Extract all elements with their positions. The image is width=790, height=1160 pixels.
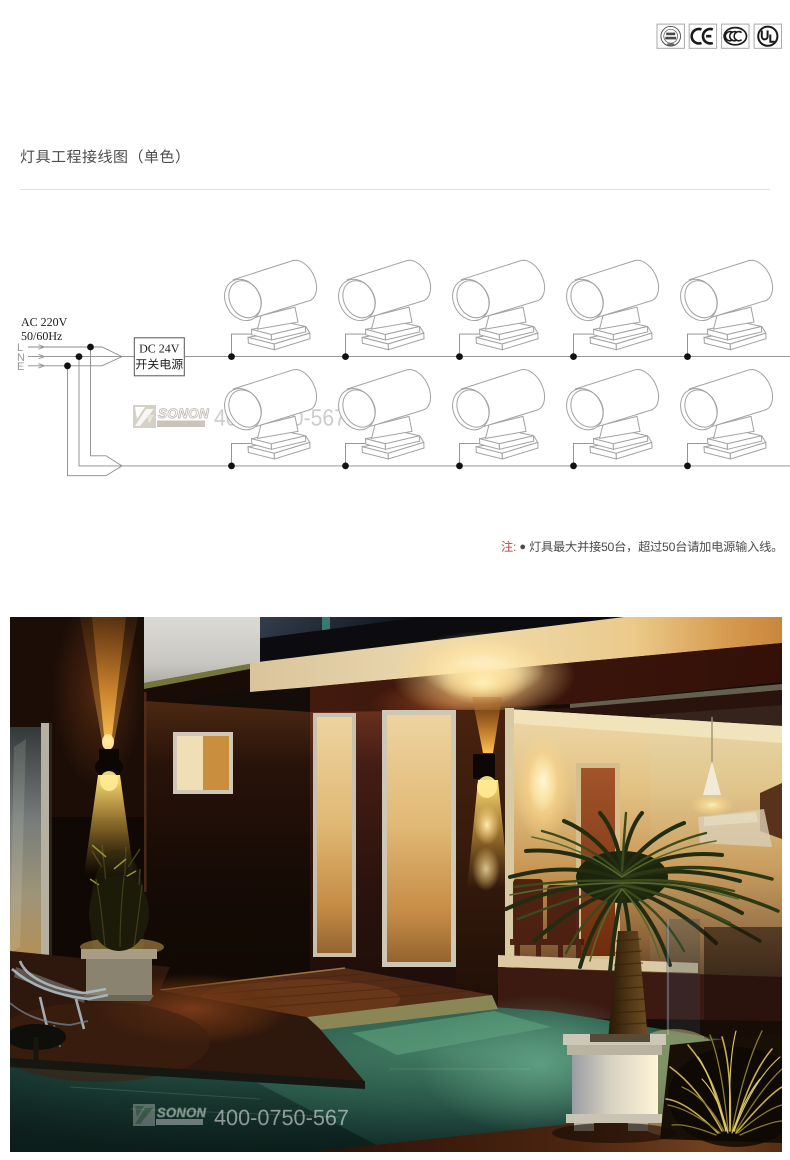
svg-text:400-0750-567: 400-0750-567 [214, 1105, 349, 1130]
svg-text:50/60Hz: 50/60Hz [21, 329, 62, 343]
svg-text:SONON: SONON [158, 406, 209, 421]
svg-text:E: E [17, 361, 24, 373]
svg-text:SONON: SONON [157, 1105, 206, 1120]
svg-text:AC 220V: AC 220V [21, 315, 68, 329]
svg-text:开关电源: 开关电源 [135, 358, 183, 372]
svg-text:DC 24V: DC 24V [139, 342, 180, 356]
